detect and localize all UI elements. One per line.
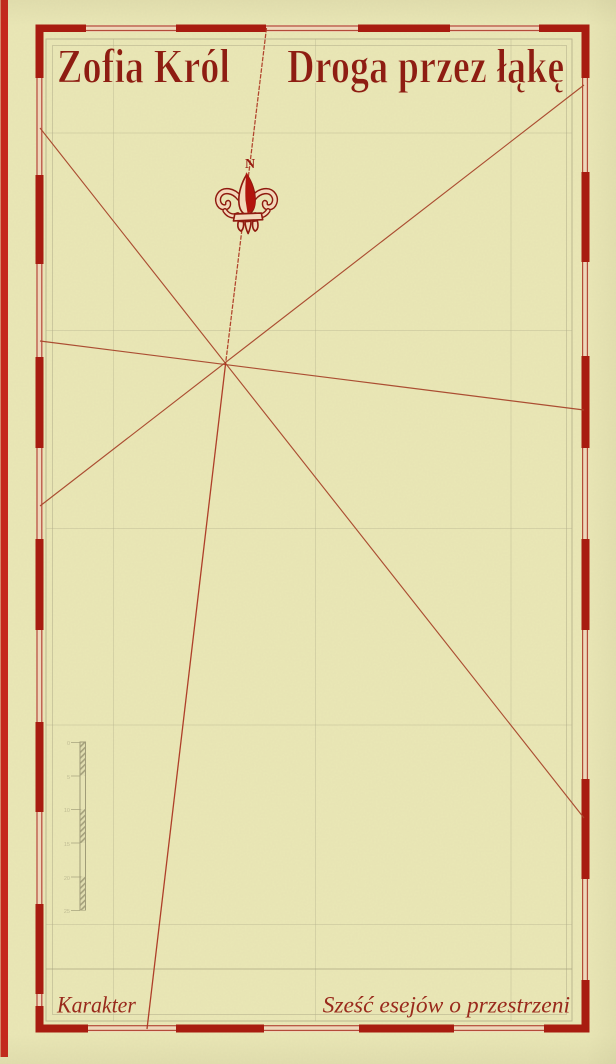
svg-text:10: 10	[64, 808, 70, 814]
svg-text:15: 15	[64, 842, 70, 848]
svg-text:0: 0	[67, 741, 70, 747]
svg-text:N: N	[245, 157, 255, 172]
svg-text:Sześć esejów o przestrzeni: Sześć esejów o przestrzeni	[323, 993, 570, 1019]
svg-text:Karakter: Karakter	[56, 992, 136, 1018]
svg-text:20: 20	[64, 876, 70, 882]
svg-text:Droga przez łąkę: Droga przez łąkę	[287, 39, 564, 94]
svg-text:25: 25	[64, 909, 70, 915]
svg-text:Zofia Król: Zofia Król	[57, 39, 230, 94]
svg-text:5: 5	[67, 775, 70, 781]
